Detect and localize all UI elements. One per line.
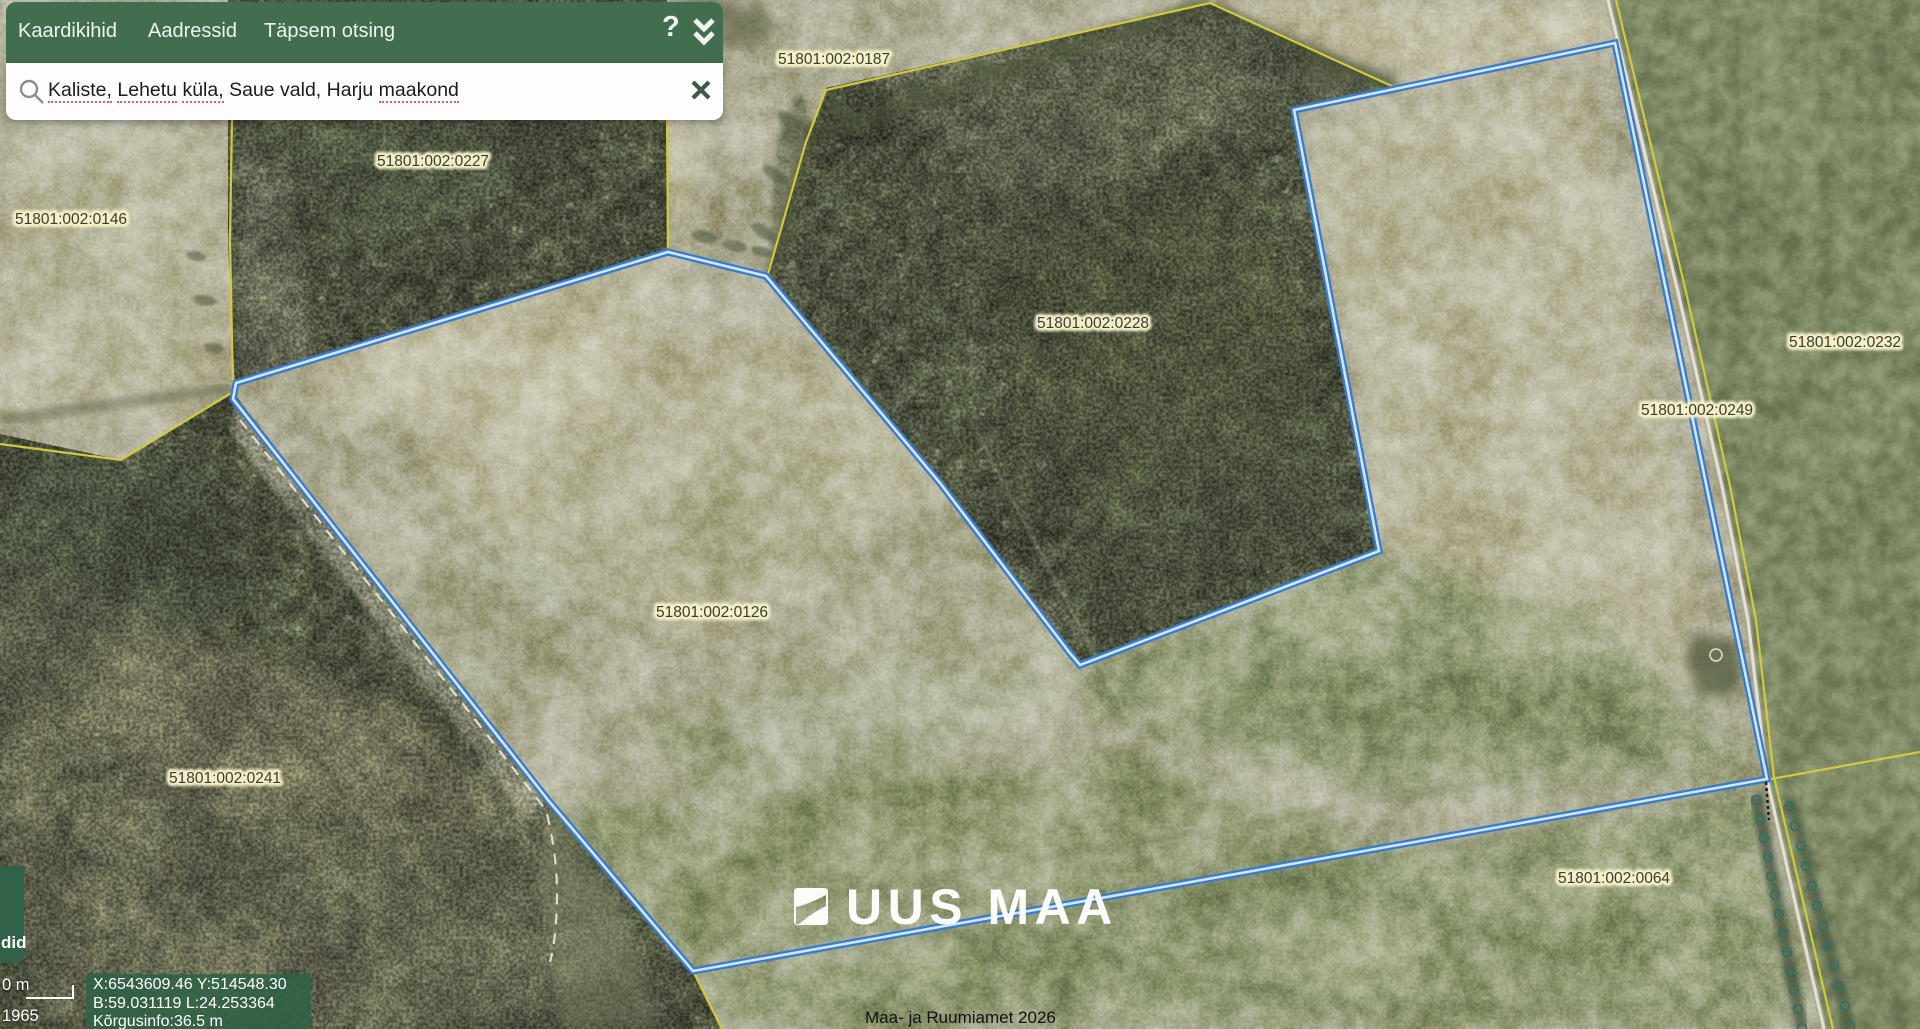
svg-text:51801:002:0249: 51801:002:0249 — [1641, 402, 1753, 419]
svg-text:51801:002:0064: 51801:002:0064 — [1558, 870, 1670, 887]
svg-text:51801:002:0228: 51801:002:0228 — [1037, 315, 1149, 332]
svg-text:51801:002:0146: 51801:002:0146 — [15, 211, 127, 228]
svg-text:51801:002:0227: 51801:002:0227 — [377, 153, 489, 170]
svg-text:51801:002:0232: 51801:002:0232 — [1789, 334, 1901, 351]
svg-text:51801:002:0241: 51801:002:0241 — [169, 770, 281, 787]
svg-text:51801:002:0187: 51801:002:0187 — [778, 51, 890, 68]
svg-text:51801:002:0126: 51801:002:0126 — [656, 604, 768, 621]
